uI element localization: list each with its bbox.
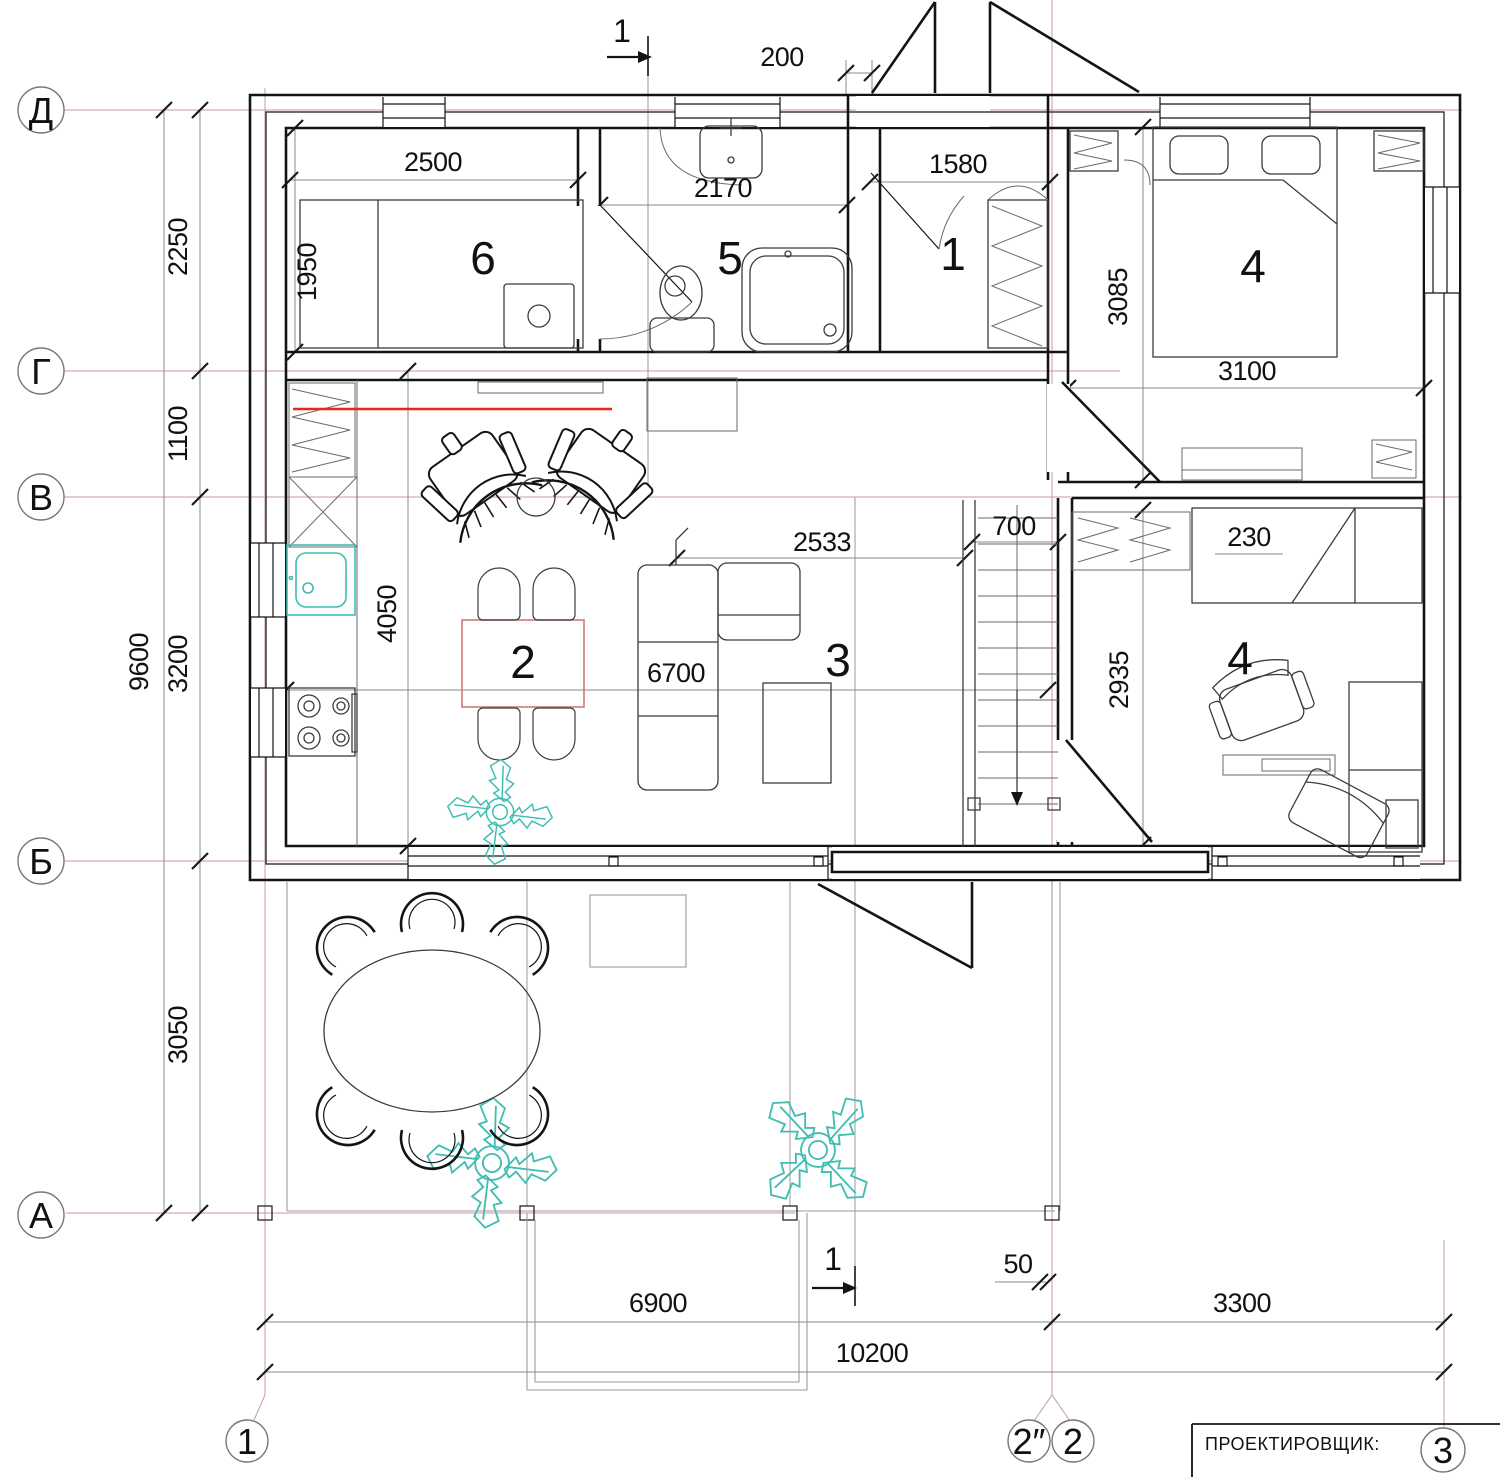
dim-1950: 1950 (292, 243, 322, 301)
tall-cabinet (289, 383, 355, 477)
bathroom-fixtures (650, 118, 852, 352)
window-left-1 (251, 543, 285, 617)
room-label-6: 6 (470, 232, 496, 284)
room6-furniture (300, 200, 583, 348)
dim-9600: 9600 (124, 633, 154, 691)
axis-label-D: Д (29, 90, 53, 131)
dim-3100: 3100 (1218, 356, 1276, 386)
furniture (289, 118, 1424, 860)
window-bottom-1 (408, 847, 828, 879)
lounge-armchairs (401, 401, 673, 547)
room-label-3: 3 (825, 634, 851, 686)
axis-label-2: 2 (1063, 1421, 1083, 1462)
toilet (650, 266, 714, 352)
dim-3085: 3085 (1103, 268, 1133, 326)
cabinet-x (289, 477, 357, 547)
terrace-door (832, 847, 1208, 879)
floor-plan-drawing: 1 1 200 2500 2170 1580 1950 2250 1100 96… (0, 0, 1500, 1477)
bedroom4b-door (1057, 740, 1152, 842)
plant-terrace-left (426, 1098, 558, 1229)
svg-text:1: 1 (613, 13, 631, 49)
svg-text:1: 1 (824, 1241, 842, 1277)
dim-2250: 2250 (163, 218, 193, 276)
terrace-dining (304, 893, 561, 1169)
hall-sideboard (478, 378, 737, 431)
dim-6700: 6700 (647, 658, 705, 688)
nightstand-right (1374, 131, 1424, 171)
desk (1349, 682, 1422, 852)
dim-2170: 2170 (694, 173, 752, 203)
axis-label-V: В (29, 477, 53, 518)
room-label-5: 5 (717, 232, 743, 284)
axis-label-1: 1 (237, 1421, 257, 1462)
dim-2533: 2533 (793, 527, 851, 557)
terrace-door-swing (818, 882, 972, 968)
room-label-2: 2 (510, 636, 536, 688)
axis-label-2s: 2″ (1013, 1421, 1046, 1462)
section-mark-bottom: 1 (812, 1241, 857, 1306)
window-right (1425, 187, 1459, 293)
door-mat (590, 895, 686, 967)
tv-shelf (1223, 755, 1335, 775)
dim-700: 700 (992, 511, 1036, 541)
dim-3050: 3050 (163, 1006, 193, 1064)
plant-terrace-right (725, 1058, 910, 1243)
window-top-3 (1160, 97, 1310, 127)
axis-label-B: Б (29, 841, 53, 882)
dim-6900: 6900 (629, 1288, 687, 1318)
dim-230: 230 (1227, 522, 1271, 552)
room-label-4a: 4 (1240, 240, 1266, 292)
washing-machine (504, 284, 574, 348)
kitchen-sink (287, 545, 355, 615)
section-marks: 1 1 (607, 13, 857, 1306)
dim-10200: 10200 (836, 1338, 909, 1368)
title-block-label: ПРОЕКТИРОВЩИК: (1205, 1434, 1380, 1454)
axis-label-A: А (29, 1195, 53, 1236)
window-top-1 (383, 97, 445, 127)
stove (289, 688, 357, 756)
entrance-door (872, 2, 1139, 93)
teal-items (287, 545, 910, 1243)
staircase (963, 500, 1060, 846)
dim-2935: 2935 (1104, 651, 1134, 709)
shower (742, 248, 852, 352)
wardrobe (1072, 512, 1190, 570)
section-mark-top: 1 (607, 13, 652, 76)
room-label-4b: 4 (1227, 632, 1253, 684)
dim-1580: 1580 (929, 149, 987, 179)
coffee-table (763, 683, 831, 783)
window-top-2 (675, 97, 780, 127)
dim-3300: 3300 (1213, 1288, 1271, 1318)
dim-4050: 4050 (372, 585, 402, 643)
dim-50: 50 (1003, 1249, 1032, 1279)
office-chair (1200, 648, 1318, 748)
floor-plan-sheet: 1 1 200 2500 2170 1580 1950 2250 1100 96… (0, 0, 1500, 1477)
axis-label-G: Г (31, 351, 51, 392)
axis-label-3: 3 (1433, 1430, 1453, 1471)
dim-1100: 1100 (163, 406, 193, 462)
kitchen (289, 380, 357, 846)
nightstand-left (1070, 131, 1118, 171)
dim-2500: 2500 (404, 147, 462, 177)
hall-wardrobe (988, 186, 1048, 348)
dimension-texts: 200 2500 2170 1580 1950 2250 1100 9600 3… (124, 42, 1276, 1368)
dim-3200: 3200 (163, 635, 193, 693)
window-left-2 (251, 688, 285, 757)
room-label-1: 1 (940, 228, 966, 280)
entry-opening (856, 96, 990, 127)
dresser (1182, 440, 1416, 480)
dim-200: 200 (760, 42, 804, 72)
